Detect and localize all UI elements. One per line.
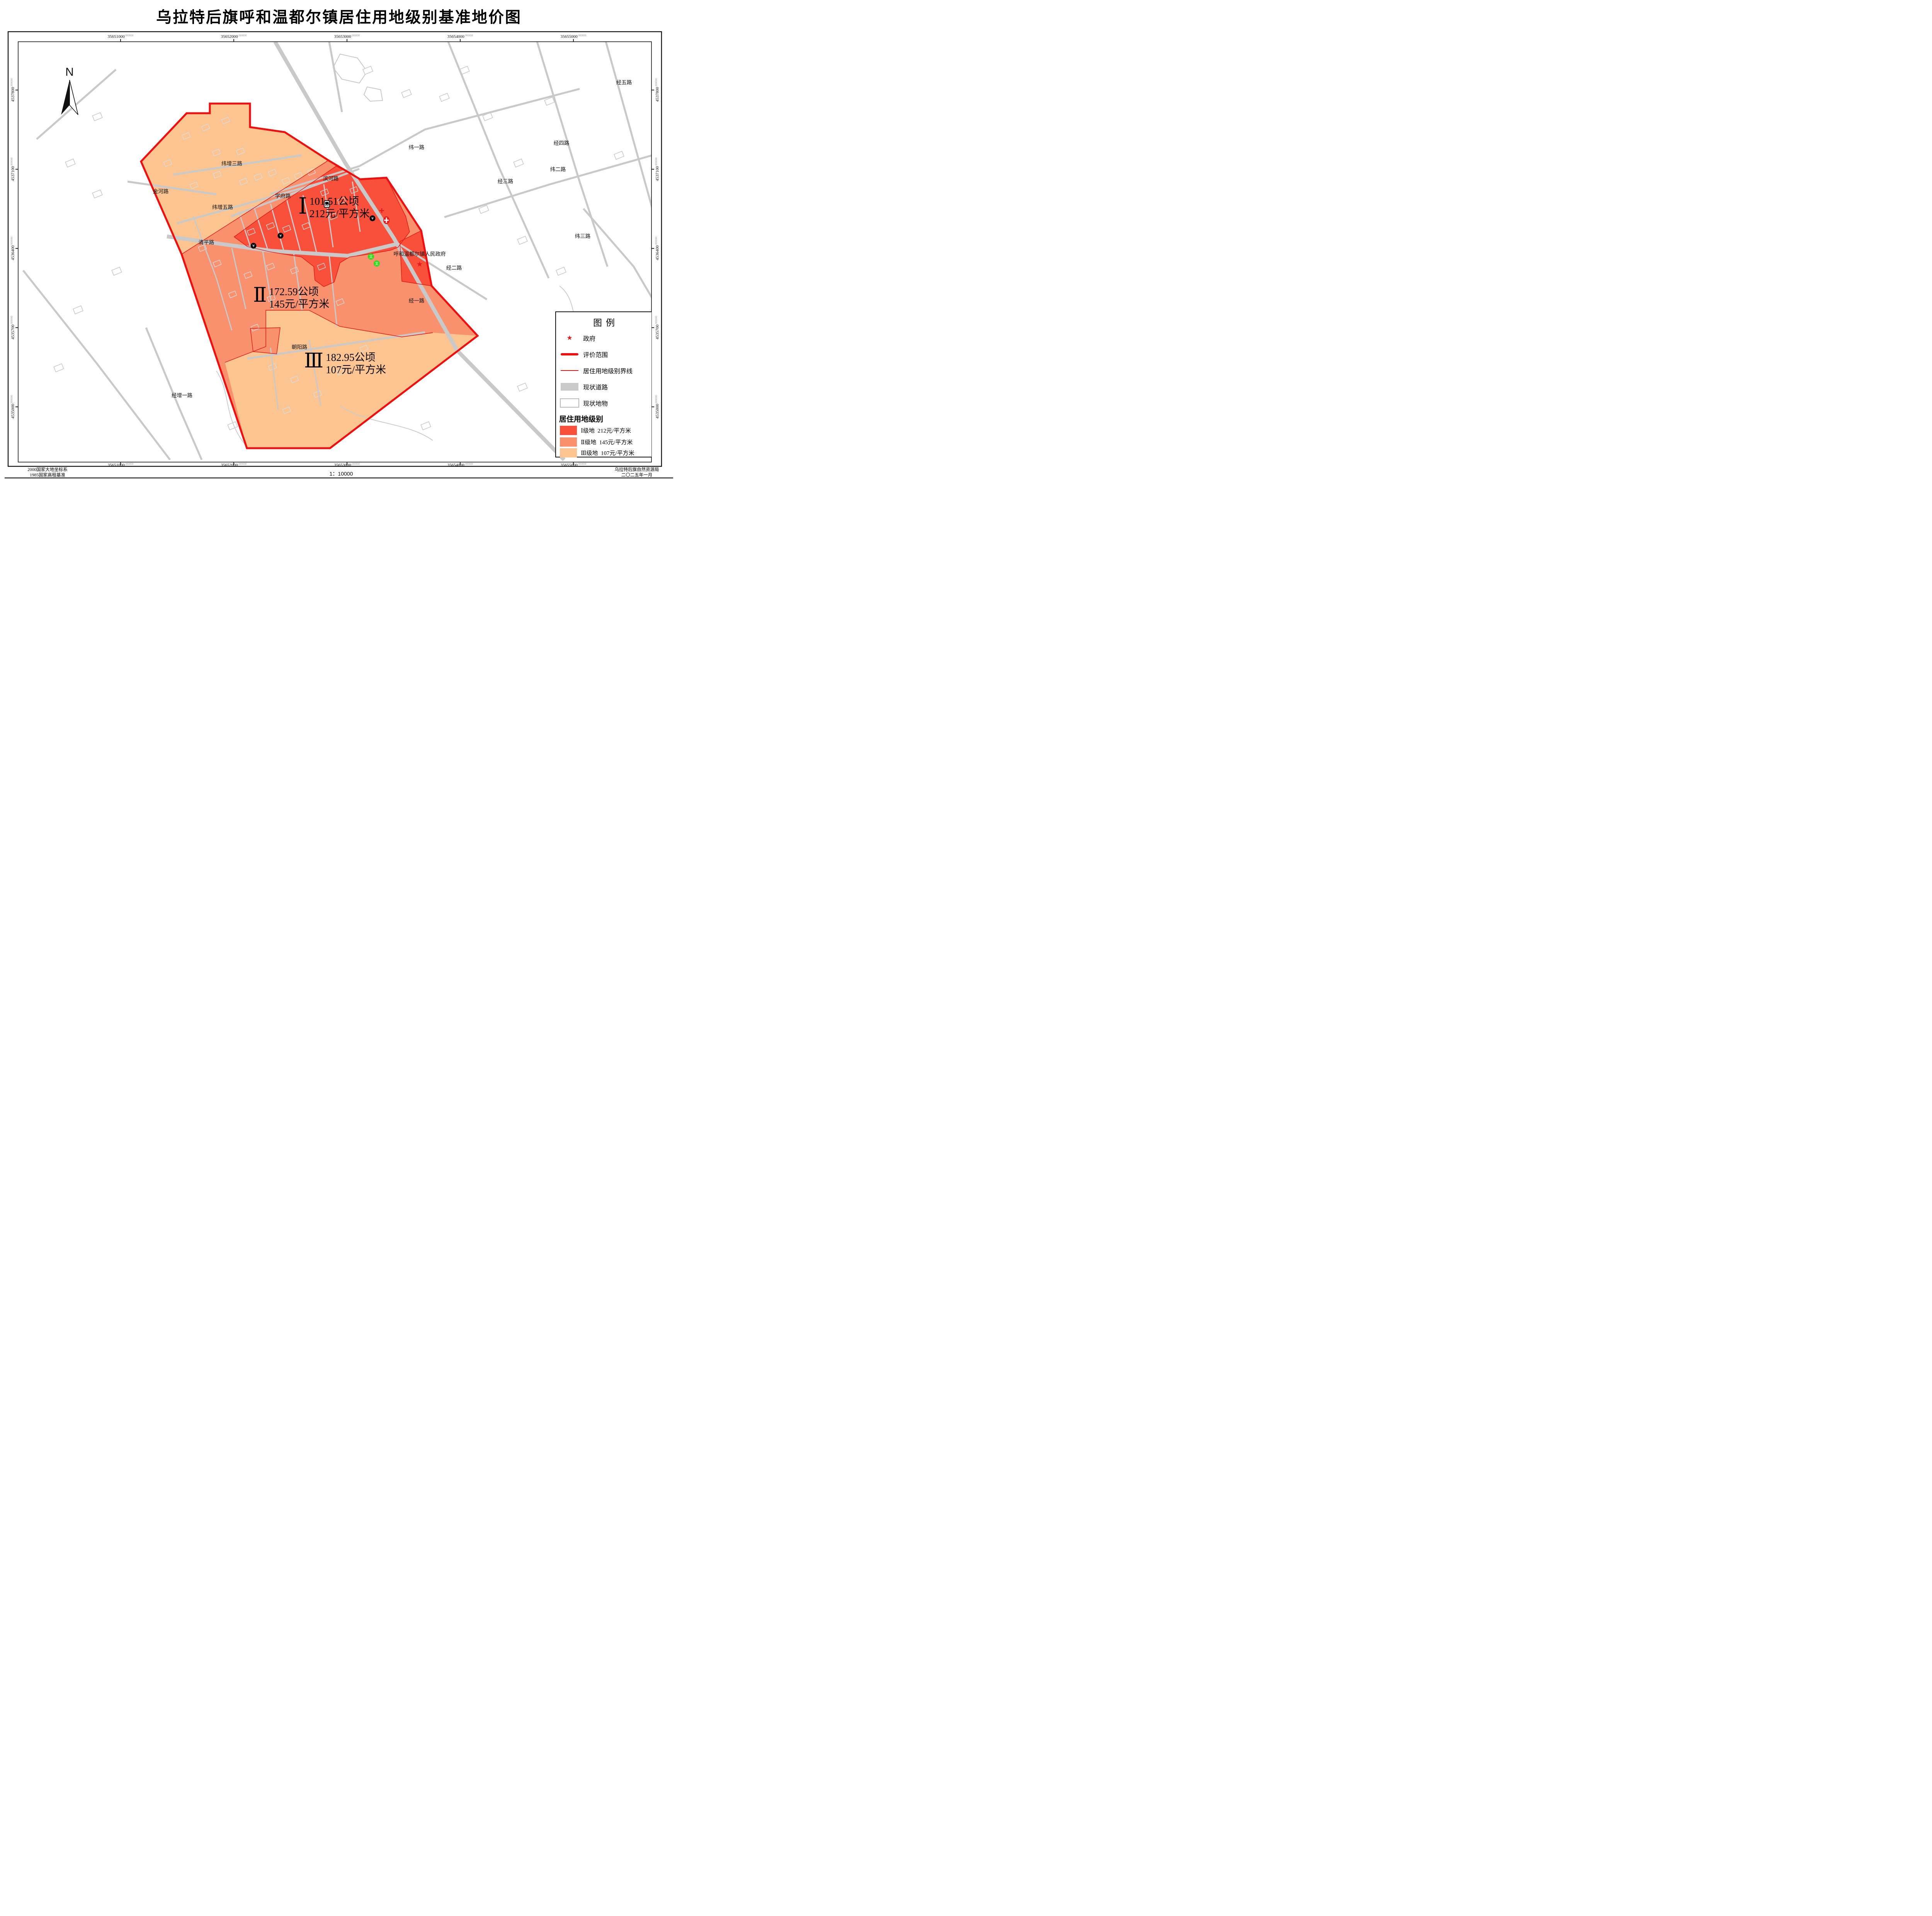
grid-label-easting: 35655000.000000 <box>561 462 587 468</box>
zone-label-grade1: Ⅰ 101.51公顷 212元/平方米 <box>298 196 370 220</box>
zone-price: 145元/平方米 <box>269 298 329 310</box>
grid-label-northing: 4537800.000000 <box>655 78 660 102</box>
grid-label-easting: 35654000.000000 <box>447 462 473 468</box>
road-label: 经五路 <box>616 78 632 86</box>
grid-label-easting: 35652000.000000 <box>221 462 247 468</box>
grid-label-easting: 35651000.000000 <box>108 34 134 39</box>
road-label: 经增一路 <box>172 391 192 399</box>
grid-label-easting: 35654000.000000 <box>447 34 473 39</box>
grade2-swatch <box>560 437 577 447</box>
legend-title: 图例 <box>556 315 651 328</box>
legend-section-title: 居住用地级别 <box>559 413 603 424</box>
publish-date: 二〇二五年一月 <box>621 473 653 478</box>
existing-road-icon <box>561 383 578 391</box>
road-label: 朝阳路 <box>292 343 308 350</box>
grade1-swatch <box>560 426 577 435</box>
grade-price: 212元/平方米 <box>597 428 631 434</box>
datum-note: 2000国家大地坐标系 1985国家高程基准 <box>15 467 80 478</box>
zone-price: 107元/平方米 <box>326 364 386 376</box>
map-area: 纬增三路金河路纬增五路清平路学府路滨河路朝阳路经增一路纬一路纬二路纬三路经一路经… <box>18 42 651 462</box>
zone-numeral: Ⅲ <box>304 352 323 371</box>
grid-label-northing: 4535000.000000 <box>655 395 660 418</box>
grid-label-easting: 35652000.000000 <box>221 34 247 39</box>
zone-numeral: Ⅰ <box>298 196 307 217</box>
map-scale: 1：10000 <box>330 470 353 478</box>
legend-item-label: 政府 <box>583 333 595 343</box>
grade3-swatch <box>560 448 577 457</box>
zone-area: 182.95公顷 <box>326 352 375 363</box>
legend-item-label: 居住用地级别界线 <box>583 366 633 375</box>
grid-label-northing: 4536400.000000 <box>10 236 15 260</box>
grade-name: Ⅰ级地 <box>581 428 595 434</box>
grade-name: Ⅱ级地 <box>581 440 596 446</box>
grid-label-easting: 35653000.000000 <box>334 462 360 468</box>
agency-name: 乌拉特后旗自然资源局 <box>615 468 659 472</box>
legend: 图例 ★ 政府 评价范围 居住用地级别界线 现状道路 现状地物 居住用地级别 <box>555 311 651 457</box>
grid-label-easting: 35655000.000000 <box>561 34 587 39</box>
grade-price: 145元/平方米 <box>599 440 633 446</box>
road-label: 纬三路 <box>575 232 591 240</box>
grade-boundary-icon <box>561 370 578 371</box>
legend-item-label: 现状地物 <box>583 398 608 408</box>
legend-item-label: 评价范围 <box>583 350 608 359</box>
road-label: 学府路 <box>275 192 291 199</box>
government-star-icon: ★ <box>566 334 572 342</box>
grid-label-easting: 35651000.000000 <box>108 462 134 468</box>
legend-item-label: 现状道路 <box>583 382 608 391</box>
zone-numeral: Ⅱ <box>253 286 267 305</box>
road-label: 纬一路 <box>409 143 425 151</box>
grid-label-northing: 4535700.000000 <box>10 316 15 339</box>
road-label: 清平路 <box>199 238 214 246</box>
grid-label-northing: 4537100.000000 <box>10 157 15 181</box>
datum-line2: 1985国家高程基准 <box>30 473 65 478</box>
grid-label-northing: 4537100.000000 <box>655 157 660 181</box>
road-label: 经三路 <box>498 177 514 185</box>
road-label: 滨河路 <box>323 174 339 182</box>
road-label: 纬增五路 <box>212 203 233 211</box>
datum-line1: 2000国家大地坐标系 <box>27 468 68 472</box>
zone-area: 101.51公顷 <box>310 196 359 207</box>
zone-label-grade3: Ⅲ 182.95公顷 107元/平方米 <box>304 352 386 376</box>
grid-label-northing: 4535000.000000 <box>10 395 15 418</box>
road-label: 经四路 <box>554 139 570 146</box>
road-label: 经一路 <box>409 296 425 304</box>
zone-price: 212元/平方米 <box>310 208 370 219</box>
road-label: 经二路 <box>446 264 462 271</box>
map-sheet: 乌拉特后旗呼和温都尔镇居住用地级别基准地价图 ¥¥¥文文★N 纬增三路金河路纬增… <box>0 0 678 479</box>
road-label: 纬二路 <box>550 165 566 173</box>
grade-name: Ⅲ级地 <box>581 451 598 457</box>
grid-label-northing: 4535700.000000 <box>655 316 660 339</box>
grid-label-northing: 4536400.000000 <box>655 236 660 260</box>
zone-area: 172.59公顷 <box>269 286 318 298</box>
agency-note: 乌拉特后旗自然资源局 二〇二五年一月 <box>602 467 672 478</box>
government-label: 呼和温都尔镇人民政府 <box>394 250 446 257</box>
evaluation-boundary-icon <box>561 353 578 355</box>
grade-price: 107元/平方米 <box>601 451 634 457</box>
road-label: 纬增三路 <box>221 159 242 167</box>
road-label: 金河路 <box>153 187 169 195</box>
zone-label-grade2: Ⅱ 172.59公顷 145元/平方米 <box>253 286 329 311</box>
grid-label-northing: 4537800.000000 <box>10 78 15 102</box>
existing-feature-icon <box>560 398 579 408</box>
grid-label-easting: 35653000.000000 <box>334 34 360 39</box>
